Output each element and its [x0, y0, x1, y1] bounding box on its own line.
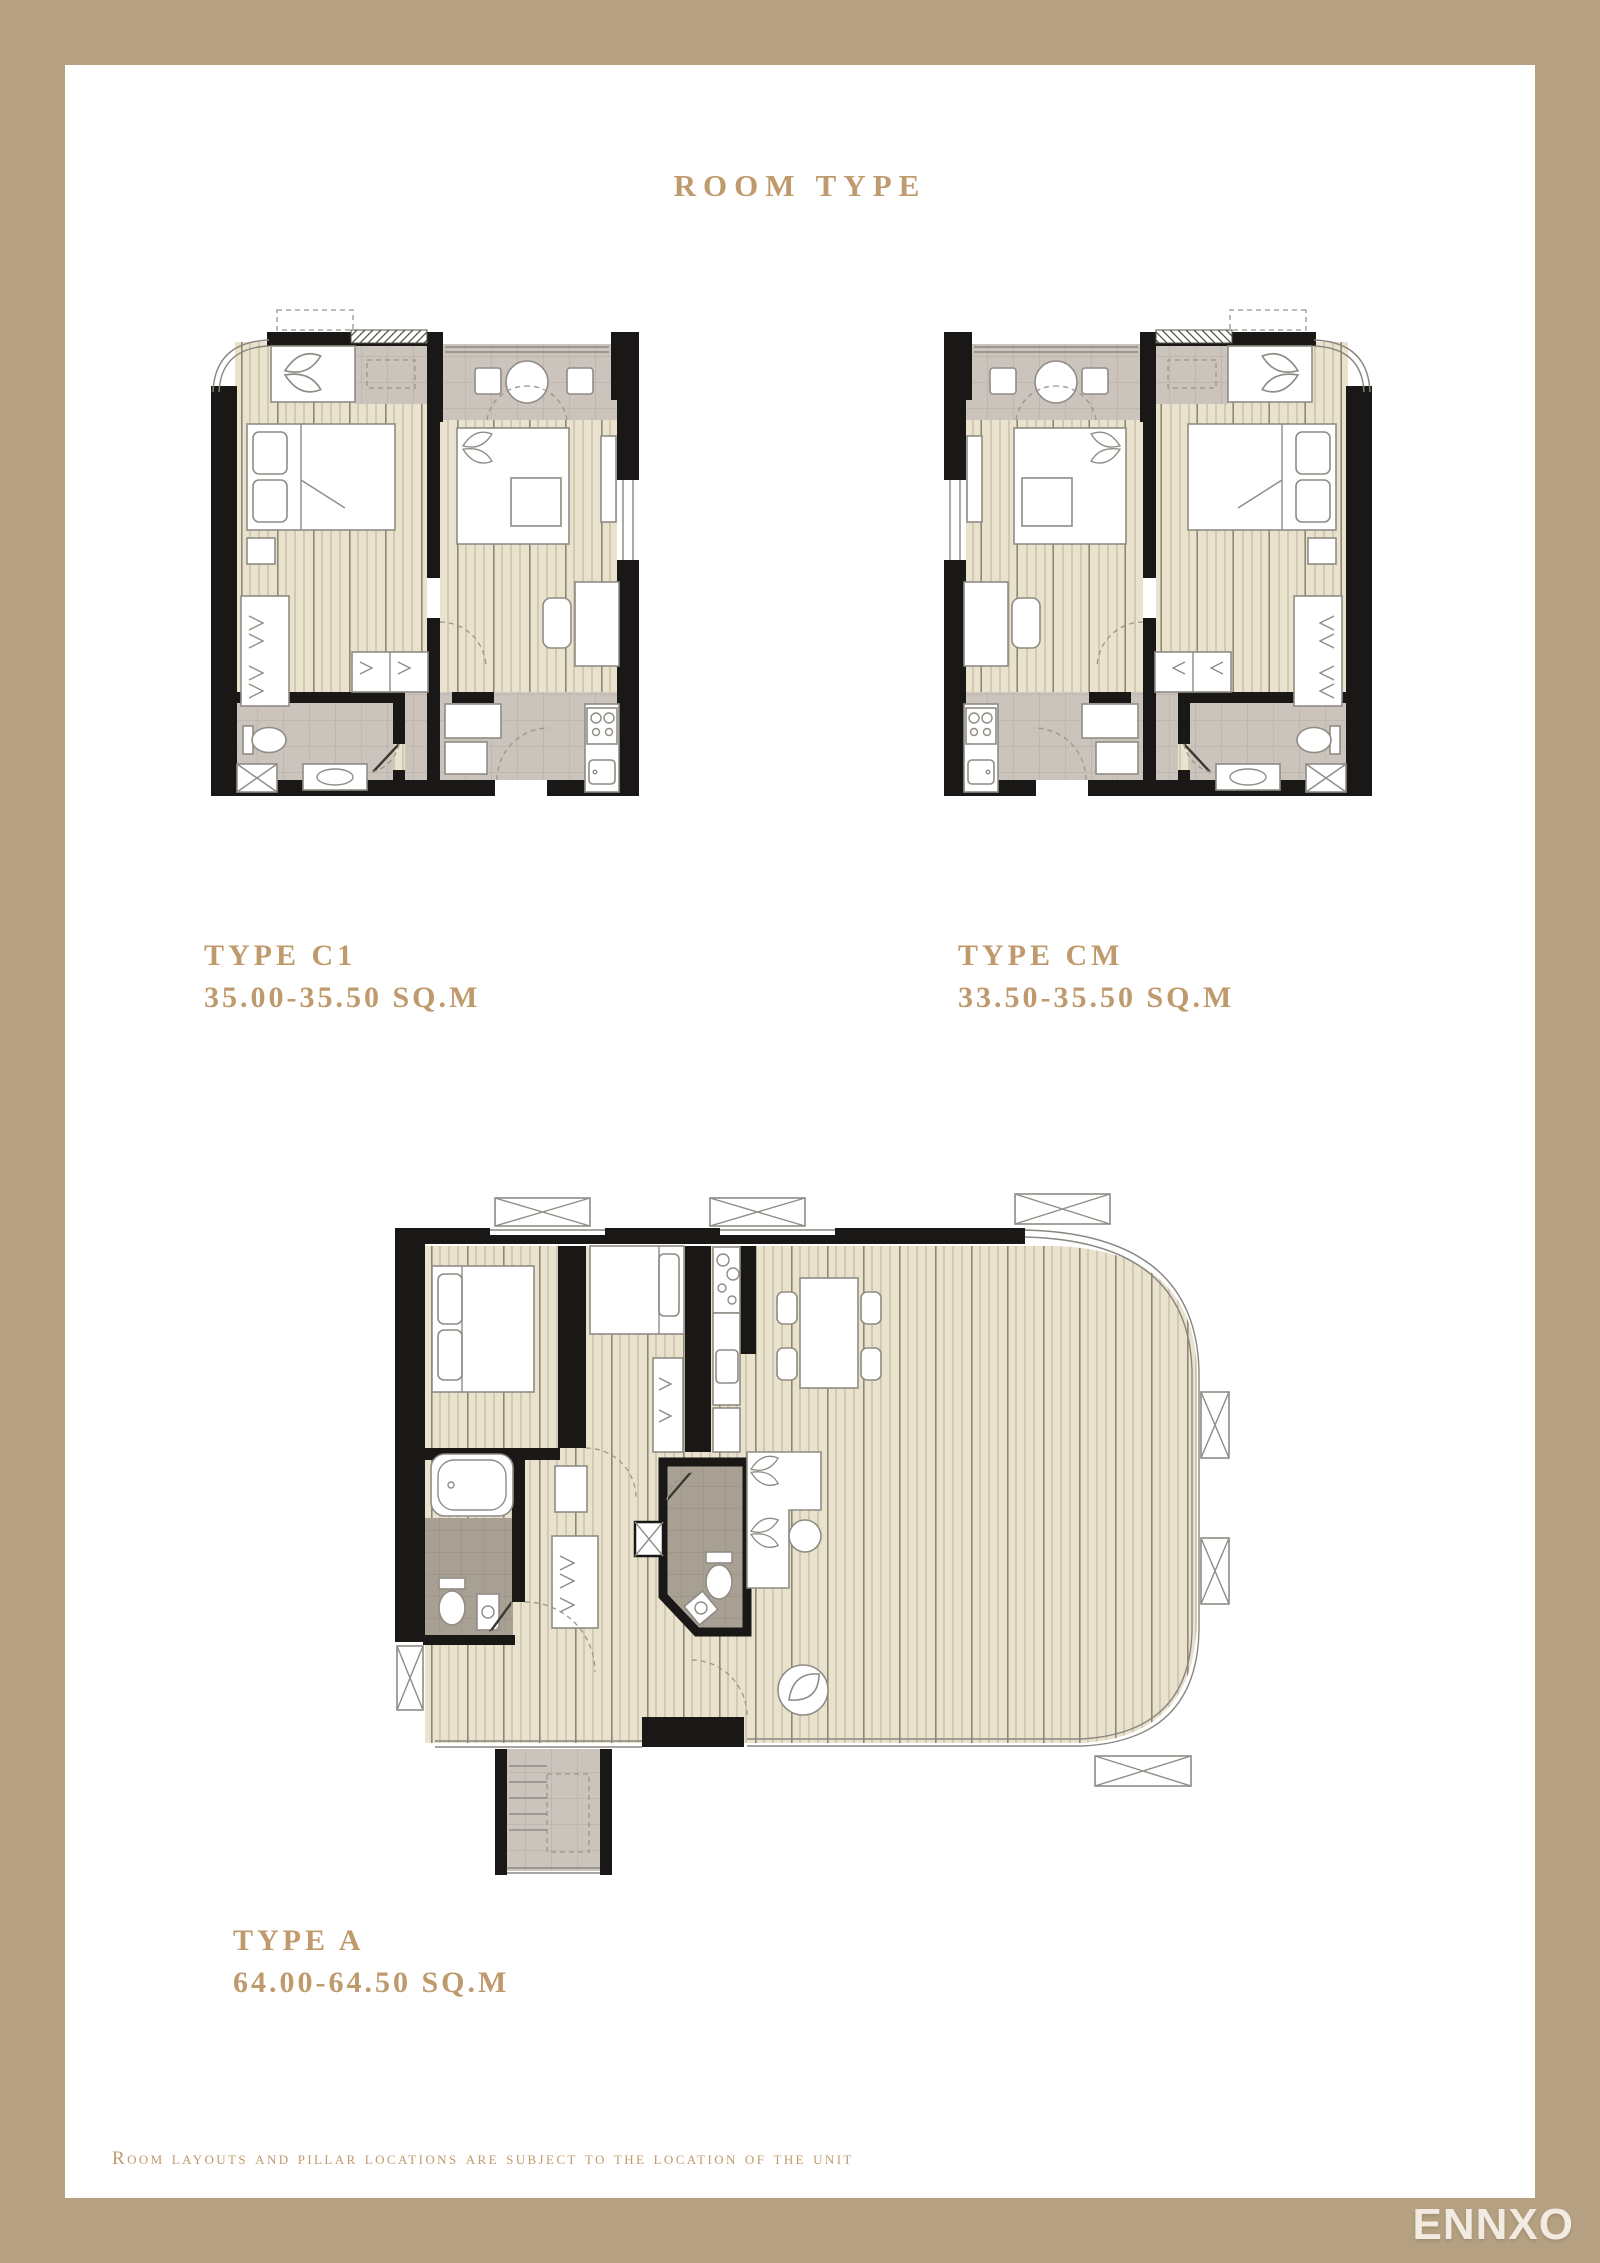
plan-label-cm: TYPE CM 33.50-35.50 SQ.M — [958, 935, 1234, 1019]
plan-area-size: 64.00-64.50 SQ.M — [233, 1962, 509, 2004]
plan-label-a: TYPE A 64.00-64.50 SQ.M — [233, 1920, 509, 2004]
kitchen-sink — [716, 1350, 738, 1383]
floorplan-type-cm — [944, 310, 1372, 796]
vanity — [303, 764, 367, 790]
toilet — [706, 1565, 732, 1599]
counter-cabinet — [713, 1408, 740, 1452]
wardrobe-tall — [241, 596, 289, 706]
brand-watermark: ENNXO — [1413, 2200, 1574, 2250]
low-cabinet — [352, 652, 428, 692]
counter-cabinet — [445, 742, 487, 774]
shaft — [635, 1522, 663, 1556]
floorplan-type-a — [395, 1194, 1229, 1875]
toilet — [439, 1591, 465, 1625]
tv-console — [601, 436, 616, 522]
counter-cabinet — [445, 704, 501, 738]
hall-cabinet — [555, 1466, 587, 1512]
balcony-stool — [475, 368, 501, 394]
plan-type-name: TYPE C1 — [204, 935, 480, 977]
plan-type-name: TYPE A — [233, 1920, 509, 1962]
toilet-tank — [439, 1578, 465, 1589]
sofa-bed — [457, 428, 569, 544]
plan-label-c1: TYPE C1 35.00-35.50 SQ.M — [204, 935, 480, 1019]
coffee-table — [789, 1520, 821, 1552]
footer-note: Room layouts and pillar locations are su… — [112, 2148, 854, 2170]
lounge-chair — [778, 1665, 828, 1715]
second-bed — [590, 1246, 684, 1334]
ac-ledge — [277, 310, 353, 330]
nightstand — [247, 538, 275, 564]
double-bed — [247, 424, 395, 530]
balcony-stool — [567, 368, 593, 394]
toilet-tank — [706, 1552, 732, 1563]
bathtub — [431, 1454, 513, 1516]
plan-area-size: 33.50-35.50 SQ.M — [958, 977, 1234, 1019]
plan-type-name: TYPE CM — [958, 935, 1234, 977]
brochure-page: ROOM TYPE — [0, 0, 1600, 2263]
balcony-round-table — [506, 361, 548, 403]
ac-closet — [355, 346, 429, 404]
wardrobe-planter — [271, 346, 355, 402]
plan-area-size: 35.00-35.50 SQ.M — [204, 977, 480, 1019]
toilet — [252, 728, 286, 753]
hall-wardrobe — [552, 1536, 598, 1628]
floorplan-type-c1 — [211, 310, 639, 796]
stove — [587, 708, 617, 744]
master-bed — [432, 1266, 534, 1392]
entry-vestibule — [495, 1749, 612, 1875]
kitchen — [713, 1247, 740, 1452]
closet — [653, 1358, 683, 1452]
